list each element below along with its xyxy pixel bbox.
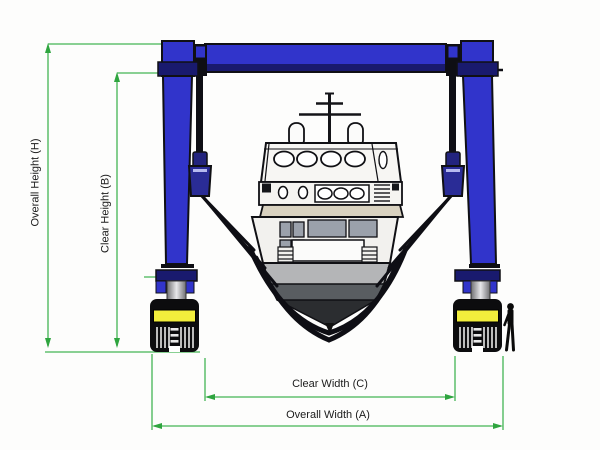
crane-leg-left xyxy=(163,76,192,264)
boat-hoist-diagram: Overall Height (H) Clear Height (B) Clea… xyxy=(0,0,600,450)
sling-block-left xyxy=(189,152,211,196)
sling-block-right xyxy=(442,152,464,196)
clear-height-label: Clear Height (B) xyxy=(99,149,114,279)
boat-deck-band xyxy=(260,205,403,217)
wheel-assembly-right xyxy=(453,299,502,352)
overall-height-label: Overall Height (H) xyxy=(29,118,44,248)
wheel-assembly-left xyxy=(150,299,199,352)
crane-leg-right xyxy=(463,76,496,264)
clear-width-label: Clear Width (C) xyxy=(255,377,405,392)
hoist-strap-left xyxy=(196,76,203,158)
deck-hatch xyxy=(292,240,364,261)
leg-base-flange-left xyxy=(156,270,197,281)
leg-base-flange-right xyxy=(455,270,500,281)
person-silhouette xyxy=(505,303,514,350)
hydraulic-cylinder-right xyxy=(471,281,490,302)
hydraulic-cylinder-left xyxy=(167,281,186,302)
overall-width-label: Overall Width (A) xyxy=(253,408,403,423)
hoist-strap-right xyxy=(449,76,456,158)
